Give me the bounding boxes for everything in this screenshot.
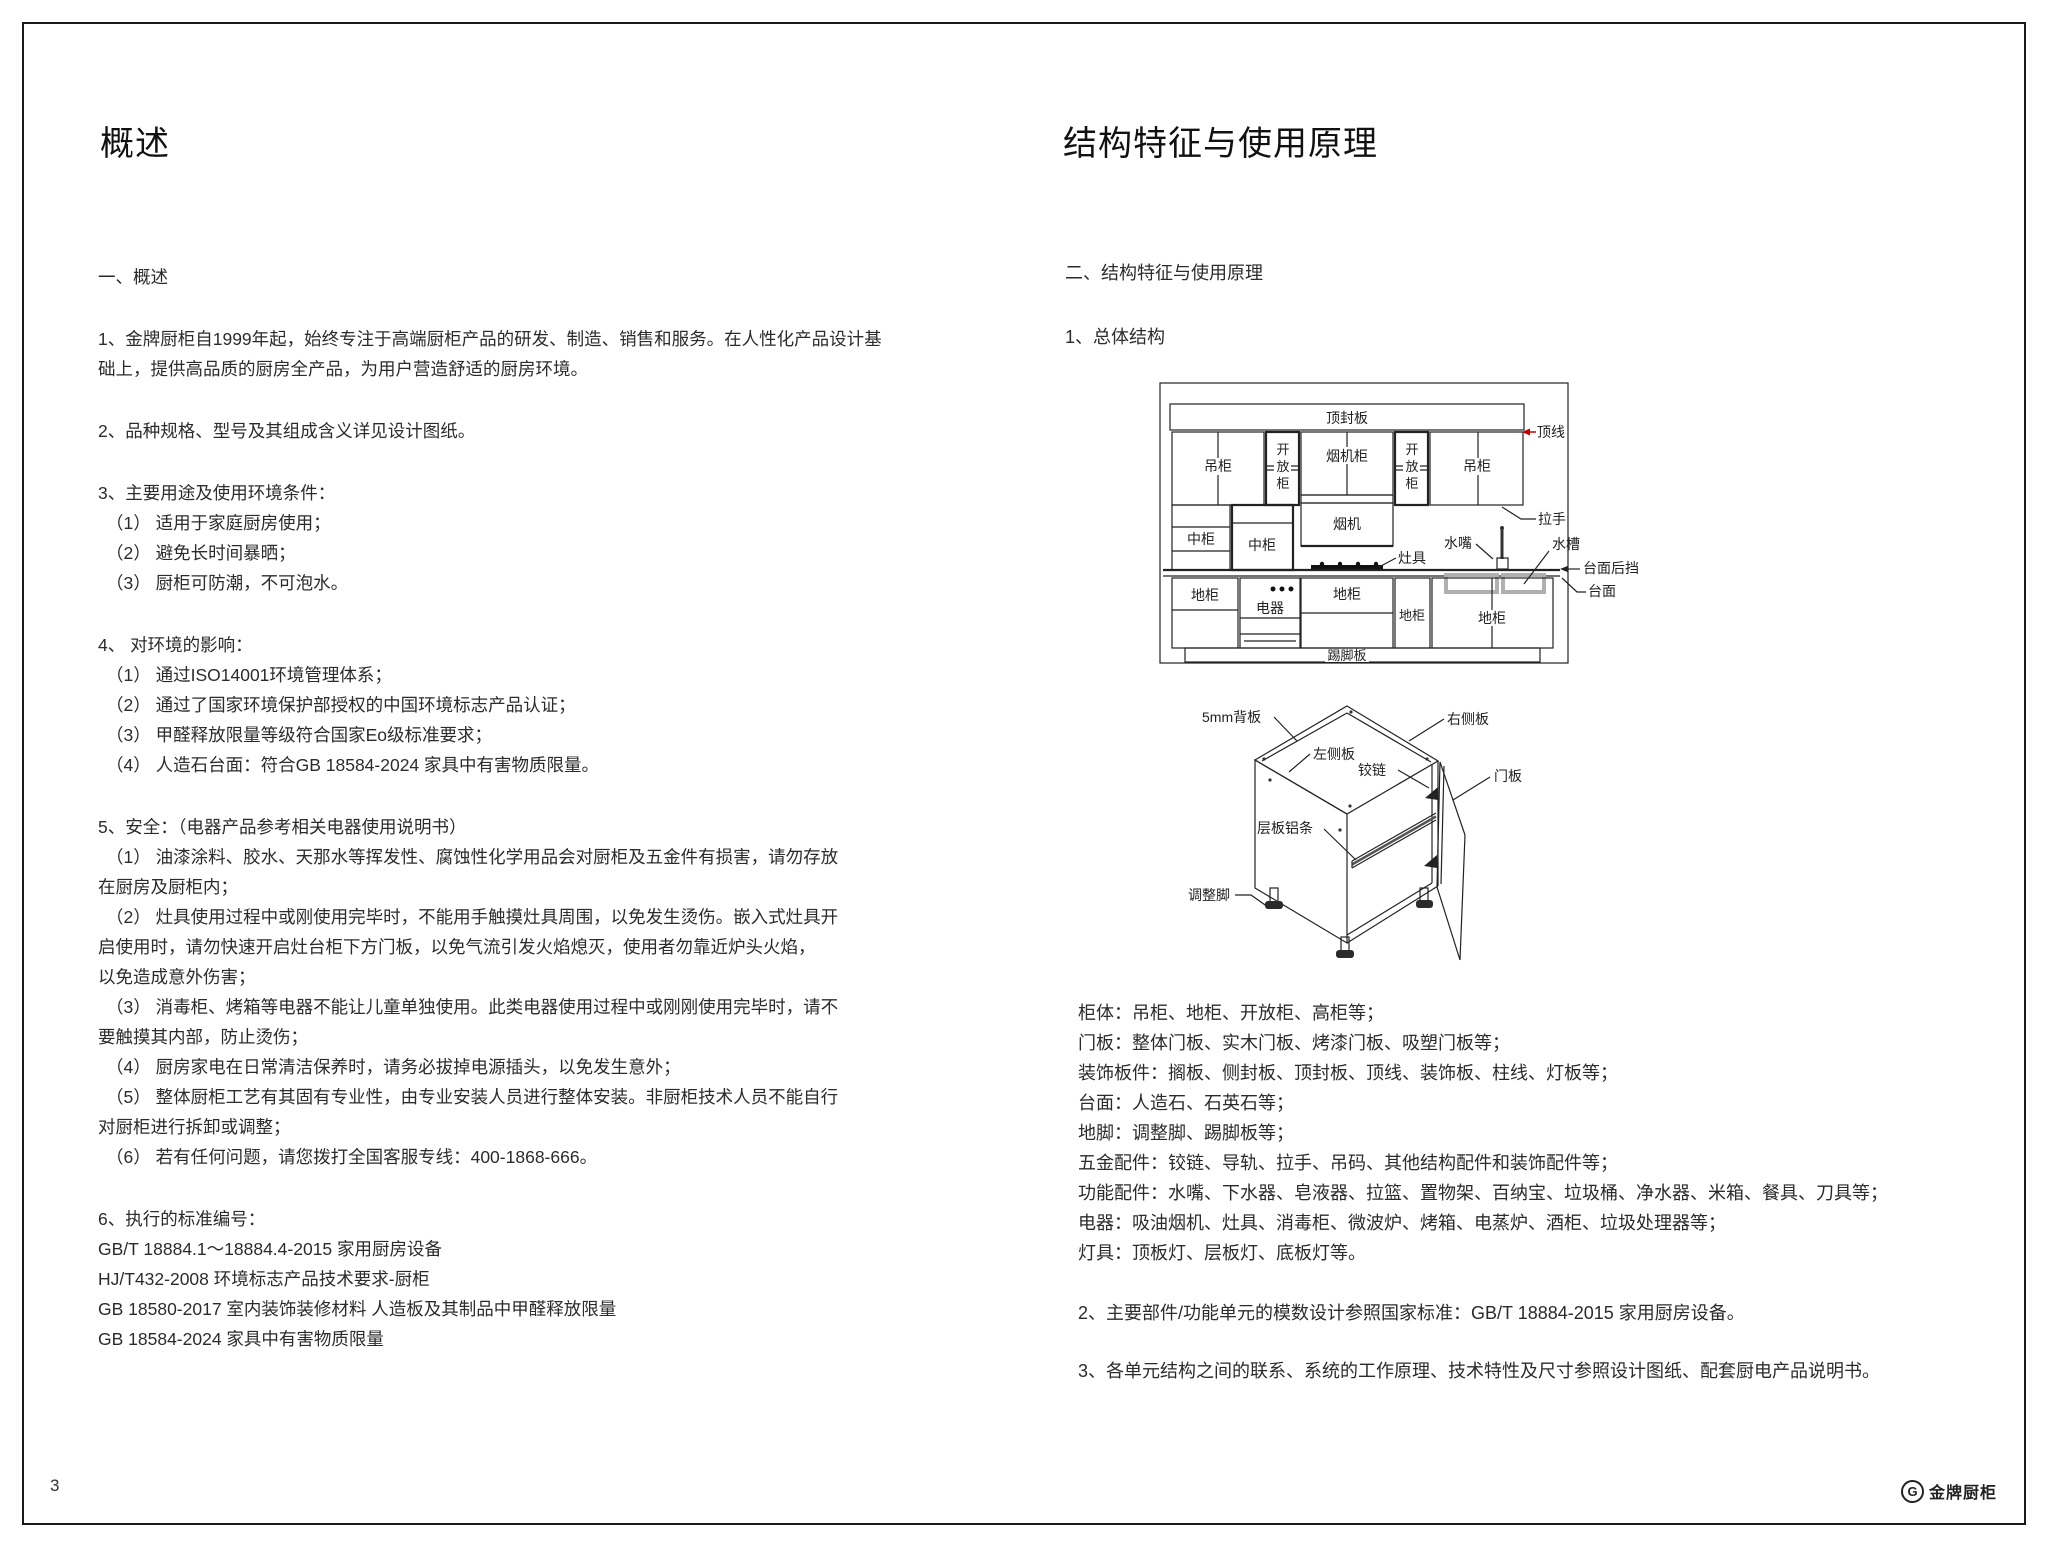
label-hinge: 铰链 bbox=[1358, 762, 1386, 778]
section-safety: 5、安全：（电器产品参考相关电器使用说明书） （1） 油漆涂料、胶水、天那水等挥… bbox=[98, 812, 938, 1172]
label-backsplash: 台面后挡 bbox=[1583, 560, 1639, 576]
text-line: （4） 厨房家电在日常清洁保养时，请务必拔掉电源插头，以免发生意外； bbox=[98, 1052, 938, 1082]
label-open-cab-right: 柜 bbox=[1405, 476, 1418, 491]
section-specs: 2、品种规格、型号及其组成含义详见设计图纸。 bbox=[98, 416, 938, 446]
component-line: 装饰板件：搁板、侧封板、顶封板、顶线、装饰板、柱线、灯板等； bbox=[1078, 1058, 1888, 1088]
text-line: （4） 人造石台面：符合GB 18584-2024 家具中有害物质限量。 bbox=[98, 750, 938, 780]
cooktop bbox=[1311, 562, 1383, 569]
label-base-cab-3: 地柜 bbox=[1399, 608, 1425, 623]
component-list: 柜体：吊柜、地柜、开放柜、高柜等； 门板：整体门板、实木门板、烤漆门板、吸塑门板… bbox=[1078, 998, 1888, 1268]
section-overview-heading: 一、概述 bbox=[98, 262, 938, 292]
text-line: （3） 厨柜可防潮，不可泡水。 bbox=[98, 568, 938, 598]
text-line: （1） 油漆涂料、胶水、天那水等挥发性、腐蚀性化学用品会对厨柜及五金件有损害，请… bbox=[98, 842, 938, 872]
text-line: （3） 甲醛释放限量等级符合国家Eo级标准要求； bbox=[98, 720, 938, 750]
text-line: 对厨柜进行拆卸或调整； bbox=[98, 1112, 938, 1142]
right-page-title: 结构特征与使用原理 bbox=[1063, 124, 1378, 164]
text-line: （2） 灶具使用过程中或刚使用完毕时，不能用手触摸灶具周围，以免发生烫伤。嵌入式… bbox=[98, 902, 938, 932]
label-leveler-foot: 调整脚 bbox=[1188, 887, 1230, 903]
leader-lines bbox=[1235, 717, 1490, 907]
text-line: GB 18584-2024 家具中有害物质限量 bbox=[98, 1324, 938, 1354]
label-mid-cab-2: 中柜 bbox=[1248, 537, 1276, 553]
label-mid-cab-1: 中柜 bbox=[1187, 531, 1215, 547]
label-countertop: 台面 bbox=[1588, 583, 1616, 599]
brand-g-icon: G bbox=[1901, 1480, 1924, 1503]
text-line: （6） 若有任何问题，请您拨打全国客服专线：400-1868-666。 bbox=[98, 1142, 938, 1172]
label-handle: 拉手 bbox=[1538, 511, 1566, 527]
label-appliance: 电器 bbox=[1256, 600, 1284, 616]
text-line: （2） 避免长时间暴晒； bbox=[98, 538, 938, 568]
label-open-cab-right: 放 bbox=[1405, 459, 1418, 474]
left-page-title: 概述 bbox=[100, 124, 170, 164]
faucet bbox=[1497, 526, 1508, 569]
shelf bbox=[1352, 813, 1436, 868]
section-usage: 3、主要用途及使用环境条件： （1） 适用于家庭厨房使用； （2） 避免长时间暴… bbox=[98, 478, 938, 598]
component-line: 台面：人造石、石英石等； bbox=[1078, 1088, 1888, 1118]
text-line: HJ/T432-2008 环境标志产品技术要求-厨柜 bbox=[98, 1264, 938, 1294]
label-hood-cabinet: 烟机柜 bbox=[1326, 448, 1368, 464]
label-door-panel: 门板 bbox=[1494, 768, 1522, 784]
label-backings bbox=[1198, 441, 1512, 662]
diagram-kitchen-elevation: 顶封板 顶线 吊柜 吊柜 开 放 柜 开 放 柜 烟机柜 拉手 中柜 中柜 烟机… bbox=[1140, 375, 1650, 685]
text-line: （5） 整体厨柜工艺有其固有专业性，由专业安装人员进行整体安装。非厨柜技术人员不… bbox=[98, 1082, 938, 1112]
section-standards: 6、执行的标准编号： GB/T 18884.1～18884.4-2015 家用厨… bbox=[98, 1204, 938, 1354]
component-line: 门板：整体门板、实木门板、烤漆门板、吸塑门板等； bbox=[1078, 1028, 1888, 1058]
label-top-panel: 顶封板 bbox=[1326, 410, 1368, 426]
text-line: GB 18580-2017 室内装饰装修材料 人造板及其制品中甲醛释放限量 bbox=[98, 1294, 938, 1324]
label-right-side-panel: 右侧板 bbox=[1447, 711, 1489, 727]
component-line: 电器：吸油烟机、灶具、消毒柜、微波炉、烤箱、电蒸炉、酒柜、垃圾处理器等； bbox=[1078, 1208, 1888, 1238]
label-hood: 烟机 bbox=[1333, 516, 1361, 532]
right-para-3: 3、各单元结构之间的联系、系统的工作原理、技术特性及尺寸参照设计图纸、配套厨电产… bbox=[1078, 1356, 1880, 1386]
text-line: （3） 消毒柜、烤箱等电器不能让儿童单独使用。此类电器使用过程中或刚刚使用完毕时… bbox=[98, 992, 938, 1022]
page-number: 3 bbox=[50, 1476, 59, 1496]
right-para-2: 2、主要部件/功能单元的模数设计参照国家标准：GB/T 18884-2015 家… bbox=[1078, 1298, 1745, 1328]
hinges bbox=[1424, 787, 1438, 868]
text-line: 1、金牌厨柜自1999年起，始终专注于高端厨柜产品的研发、制造、销售和服务。在人… bbox=[98, 324, 938, 354]
countertop-lines bbox=[1163, 570, 1560, 576]
brand-logo: G 金牌厨柜 bbox=[1901, 1479, 1997, 1503]
label-base-cab-1: 地柜 bbox=[1191, 587, 1219, 603]
label-base-cab-2: 地柜 bbox=[1333, 586, 1361, 602]
text-line: 在厨房及厨柜内； bbox=[98, 872, 938, 902]
text-line: 3、主要用途及使用环境条件： bbox=[98, 478, 938, 508]
text-line: 6、执行的标准编号： bbox=[98, 1204, 938, 1234]
component-line: 功能配件：水嘴、下水器、皂液器、拉篮、置物架、百纳宝、垃圾桶、净水器、米箱、餐具… bbox=[1078, 1178, 1888, 1208]
brand-name: 金牌厨柜 bbox=[1929, 1479, 1997, 1503]
component-line: 五金配件：铰链、导轨、拉手、吊码、其他结构配件和装饰配件等； bbox=[1078, 1148, 1888, 1178]
label-open-cab-left: 放 bbox=[1276, 459, 1289, 474]
label-cooktop: 灶具 bbox=[1398, 550, 1426, 566]
text-line: 础上，提供高品质的厨房全产品，为用户营造舒适的厨房环境。 bbox=[98, 354, 938, 384]
label-wall-cab-left: 吊柜 bbox=[1204, 458, 1232, 474]
hood-cabinet bbox=[1301, 432, 1393, 503]
label-toe-kick: 踢脚板 bbox=[1327, 648, 1366, 663]
text-line: GB/T 18884.1～18884.4-2015 家用厨房设备 bbox=[98, 1234, 938, 1264]
text-line: 5、安全：（电器产品参考相关电器使用说明书） bbox=[98, 812, 938, 842]
label-base-cab-4: 地柜 bbox=[1478, 610, 1506, 626]
label-open-cab-right: 开 bbox=[1405, 442, 1418, 457]
label-open-cab-left: 柜 bbox=[1276, 476, 1289, 491]
right-sub-heading: 1、总体结构 bbox=[1065, 322, 1165, 352]
left-column: 一、概述 1、金牌厨柜自1999年起，始终专注于高端厨柜产品的研发、制造、销售和… bbox=[98, 262, 938, 1386]
label-faucet: 水嘴 bbox=[1444, 535, 1472, 551]
diagram-base-cabinet: 5mm背板 右侧板 左侧板 铰链 门板 层板铝条 调整脚 bbox=[1170, 690, 1650, 1035]
right-section-heading: 二、结构特征与使用原理 bbox=[1065, 258, 1263, 288]
text-line: 以免造成意外伤害； bbox=[98, 962, 938, 992]
manual-page: 概述 一、概述 1、金牌厨柜自1999年起，始终专注于高端厨柜产品的研发、制造、… bbox=[0, 0, 2048, 1547]
text-line: 启使用时，请勿快速开启灶台柜下方门板，以免气流引发火焰熄灭，使用者勿靠近炉头火焰… bbox=[98, 932, 938, 962]
label-crown-line: 顶线 bbox=[1537, 424, 1565, 440]
text-line: （1） 通过ISO14001环境管理体系； bbox=[98, 660, 938, 690]
text-line: （2） 通过了国家环境保护部授权的中国环境标志产品认证； bbox=[98, 690, 938, 720]
section-environment: 4、 对环境的影响： （1） 通过ISO14001环境管理体系； （2） 通过了… bbox=[98, 630, 938, 780]
label-back-panel: 5mm背板 bbox=[1202, 709, 1261, 725]
label-sink: 水槽 bbox=[1552, 536, 1580, 552]
label-shelf-strip: 层板铝条 bbox=[1257, 820, 1313, 836]
label-wall-cab-right: 吊柜 bbox=[1463, 458, 1491, 474]
label-left-side-panel: 左侧板 bbox=[1313, 746, 1355, 762]
text-line: 要触摸其内部，防止烫伤； bbox=[98, 1022, 938, 1052]
text-line: 一、概述 bbox=[98, 262, 938, 292]
component-line: 灯具：顶板灯、层板灯、底板灯等。 bbox=[1078, 1238, 1888, 1268]
section-intro: 1、金牌厨柜自1999年起，始终专注于高端厨柜产品的研发、制造、销售和服务。在人… bbox=[98, 324, 938, 384]
component-line: 地脚：调整脚、踢脚板等； bbox=[1078, 1118, 1888, 1148]
text-line: （1） 适用于家庭厨房使用； bbox=[98, 508, 938, 538]
text-line: 4、 对环境的影响： bbox=[98, 630, 938, 660]
text-line: 2、品种规格、型号及其组成含义详见设计图纸。 bbox=[98, 416, 938, 446]
door-panel bbox=[1437, 762, 1465, 960]
label-open-cab-left: 开 bbox=[1276, 442, 1289, 457]
component-line: 柜体：吊柜、地柜、开放柜、高柜等； bbox=[1078, 998, 1888, 1028]
